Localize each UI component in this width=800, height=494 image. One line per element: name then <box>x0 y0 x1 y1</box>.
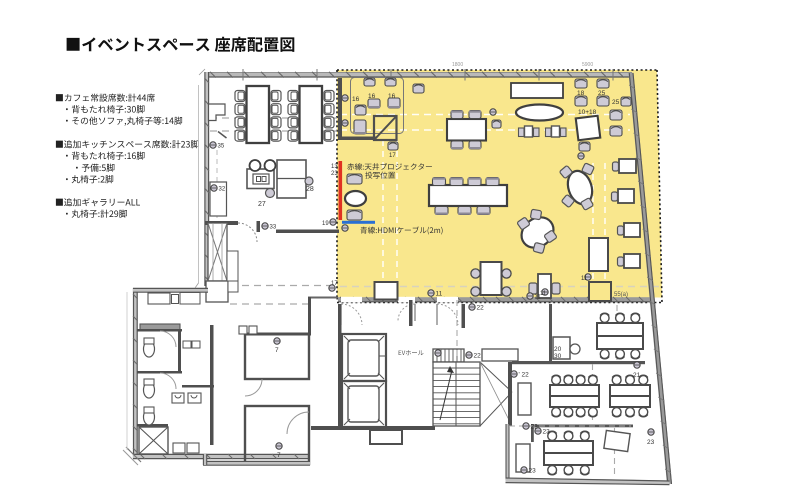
svg-text:22: 22 <box>474 352 482 359</box>
svg-text:16: 16 <box>352 96 360 103</box>
svg-text:25: 25 <box>612 99 620 106</box>
svg-text:' 22: ' 22 <box>519 371 530 378</box>
svg-text:21: 21 <box>633 372 641 379</box>
svg-text:23: 23 <box>331 171 338 177</box>
svg-text:23: 23 <box>529 467 537 474</box>
svg-text:11: 11 <box>436 290 443 297</box>
svg-text:30: 30 <box>554 353 562 360</box>
svg-text:55(a): 55(a) <box>614 292 628 298</box>
svg-text:7: 7 <box>277 452 281 459</box>
svg-text:27: 27 <box>258 201 266 208</box>
svg-text:22: 22 <box>477 304 485 311</box>
svg-text:17: 17 <box>331 281 338 287</box>
svg-text:23: 23 <box>543 428 551 435</box>
svg-text:17: 17 <box>389 153 396 159</box>
svg-text:11: 11 <box>581 276 588 282</box>
svg-text:1800: 1800 <box>452 62 463 68</box>
svg-text:19: 19 <box>322 221 329 227</box>
svg-text:7: 7 <box>275 347 279 354</box>
svg-text:20: 20 <box>554 346 562 353</box>
svg-text:23: 23 <box>647 439 655 446</box>
svg-text:35: 35 <box>218 143 225 149</box>
svg-text:5900: 5900 <box>582 62 593 68</box>
svg-text:13: 13 <box>331 164 338 170</box>
svg-text:33: 33 <box>270 224 277 230</box>
svg-text:10+18: 10+18 <box>578 109 597 116</box>
svg-text:28: 28 <box>306 186 314 193</box>
svg-text:32: 32 <box>219 186 226 192</box>
svg-text:11: 11 <box>535 294 542 300</box>
svg-text:11: 11 <box>540 291 547 297</box>
